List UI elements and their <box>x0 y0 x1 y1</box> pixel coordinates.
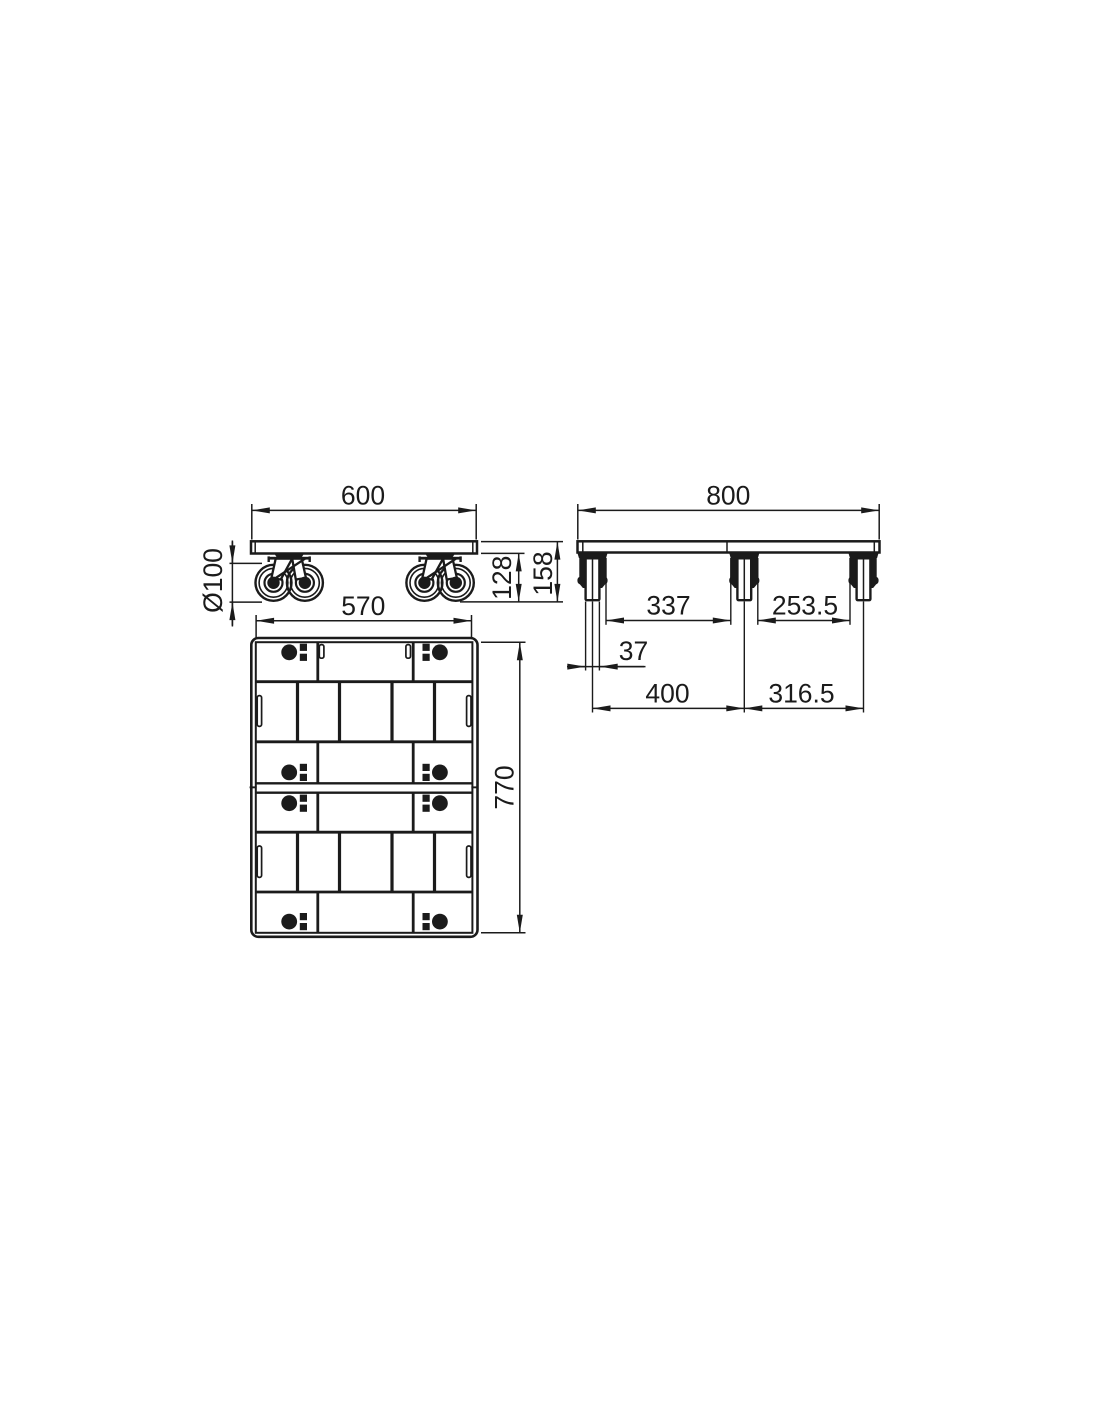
svg-text:Ø100: Ø100 <box>198 548 228 613</box>
svg-text:770: 770 <box>490 765 520 809</box>
svg-text:158: 158 <box>528 551 558 595</box>
svg-text:800: 800 <box>706 481 750 511</box>
svg-text:600: 600 <box>341 481 385 511</box>
svg-text:37: 37 <box>619 636 648 666</box>
svg-text:316.5: 316.5 <box>768 678 834 708</box>
svg-text:253.5: 253.5 <box>772 591 838 621</box>
svg-text:570: 570 <box>341 591 385 621</box>
svg-text:337: 337 <box>646 591 690 621</box>
svg-text:128: 128 <box>487 556 517 600</box>
svg-text:400: 400 <box>645 678 689 708</box>
